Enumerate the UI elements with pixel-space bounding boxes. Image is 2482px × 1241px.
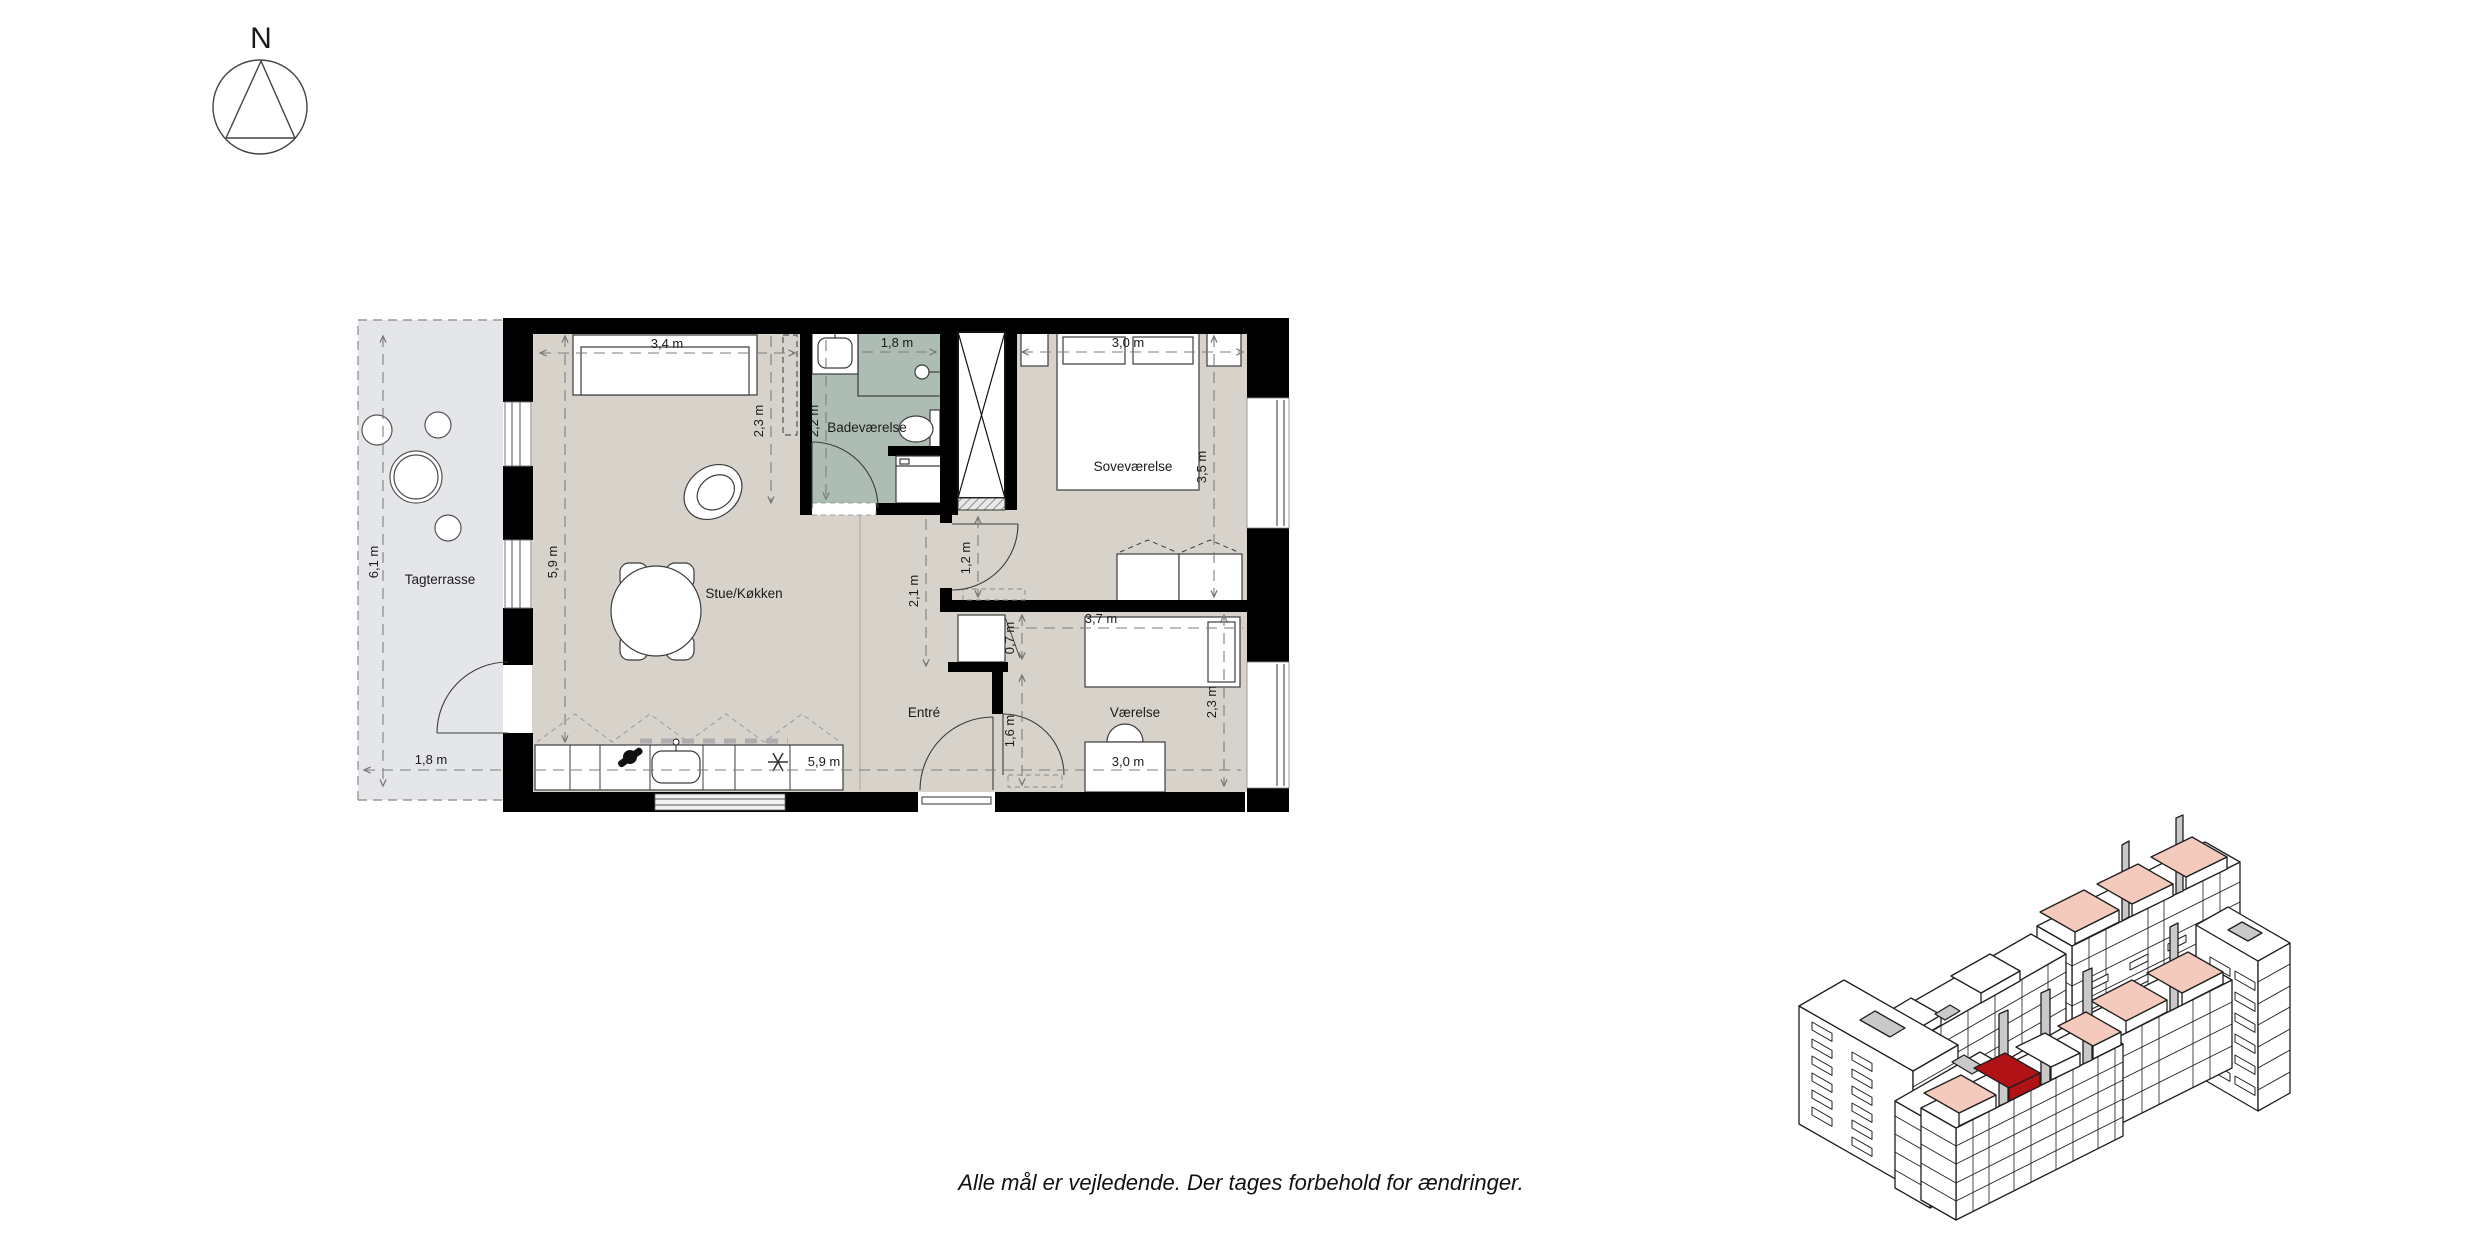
floor-plan: 6,1 m 1,8 m 3,4 m 5,9 m 2,3 m 2,2 m 1,8 … <box>358 318 1289 812</box>
window-living-2 <box>505 540 531 608</box>
shaft <box>958 332 1005 510</box>
label-bedroom: Soveværelse <box>1094 459 1173 474</box>
label-room: Værelse <box>1110 705 1160 720</box>
bath-sink-icon <box>812 327 858 374</box>
dim-room-depth: 2,3 m <box>1204 686 1219 719</box>
window-bedroom <box>1247 398 1289 528</box>
dim-room-bed: 3,7 m <box>1085 611 1118 626</box>
window-room <box>1247 662 1289 788</box>
nightstand-icon <box>1207 333 1241 366</box>
disclaimer-text: Alle mål er vejledende. Der tages forbeh… <box>956 1170 1523 1195</box>
dim-terrace-width: 1,8 m <box>415 752 448 767</box>
dim-sofa-wall: 3,4 m <box>651 336 684 351</box>
dim-shower-width: 1,8 m <box>881 335 914 350</box>
floorplan-page: N <box>0 0 2482 1241</box>
label-terrace: Tagterrasse <box>405 572 476 587</box>
dim-bedroom-door: 1,2 m <box>958 542 973 575</box>
compass-circle-icon <box>213 60 307 154</box>
label-hall: Entré <box>908 705 940 720</box>
dim-room-niche: 0,7 m <box>1002 622 1017 655</box>
label-bathroom: Badeværelse <box>827 420 907 435</box>
window-living-1 <box>505 402 531 466</box>
dim-living-niche: 2,3 m <box>751 405 766 438</box>
window-kitchen <box>655 794 785 810</box>
dim-bathroom-width: 2,2 m <box>806 405 821 438</box>
dining-set-icon <box>611 563 701 660</box>
dim-hall-width: 2,1 m <box>906 575 921 608</box>
north-label: N <box>250 22 272 55</box>
dim-room-desk: 3,0 m <box>1112 754 1145 769</box>
dim-kitchen-length: 5,9 m <box>808 754 841 769</box>
north-arrow: N <box>213 22 307 154</box>
washer-icon <box>888 446 942 503</box>
compass-needle-icon <box>226 61 295 138</box>
site-plan <box>1799 815 2290 1220</box>
dim-bedroom-depth: 3,5 m <box>1194 451 1209 484</box>
dim-living-length: 5,9 m <box>545 546 560 579</box>
dim-room-door: 1,6 m <box>1002 715 1017 748</box>
label-living: Stue/Køkken <box>705 586 782 601</box>
dim-bedroom-bed: 3,0 m <box>1112 335 1145 350</box>
nightstand-icon <box>1021 333 1048 366</box>
dim-terrace-length: 6,1 m <box>366 546 381 579</box>
